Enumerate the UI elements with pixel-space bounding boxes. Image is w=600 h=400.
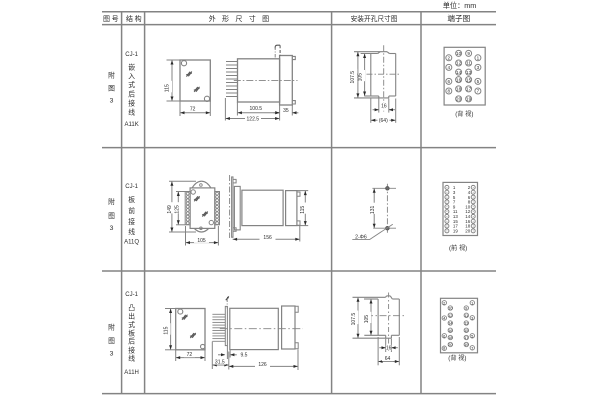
- svg-text:19: 19: [466, 97, 472, 102]
- svg-text:接: 接: [128, 99, 135, 108]
- svg-text:线: 线: [128, 227, 135, 236]
- svg-text:72: 72: [190, 106, 196, 112]
- svg-text:19: 19: [453, 229, 458, 234]
- svg-text:9.5: 9.5: [241, 353, 248, 359]
- svg-text:8: 8: [448, 89, 451, 94]
- svg-text:式: 式: [128, 80, 135, 89]
- svg-text:板: 板: [128, 328, 135, 337]
- svg-text:17: 17: [466, 87, 472, 92]
- svg-text:16: 16: [448, 328, 453, 333]
- svg-text:115: 115: [163, 326, 169, 334]
- svg-text:20: 20: [465, 229, 470, 234]
- svg-text:18: 18: [456, 87, 462, 92]
- svg-text:图: 图: [108, 337, 115, 345]
- svg-text:126: 126: [258, 362, 267, 368]
- svg-text:CJ-1: CJ-1: [125, 52, 138, 58]
- svg-text:图号: 图号: [103, 15, 120, 23]
- svg-text:13: 13: [464, 321, 469, 326]
- svg-text:接: 接: [128, 217, 135, 226]
- svg-text:64: 64: [385, 356, 391, 362]
- svg-text:附: 附: [108, 197, 115, 206]
- svg-text:13: 13: [466, 70, 472, 75]
- svg-text:105: 105: [358, 73, 364, 82]
- svg-text:嵌: 嵌: [128, 64, 135, 72]
- svg-text:16: 16: [381, 104, 387, 110]
- svg-text:19: 19: [464, 342, 469, 347]
- svg-text:18: 18: [448, 335, 453, 340]
- svg-text:(64): (64): [379, 118, 388, 124]
- svg-text:156: 156: [263, 235, 272, 241]
- svg-text:16: 16: [456, 77, 462, 82]
- svg-text:115: 115: [164, 84, 170, 92]
- svg-text:图: 图: [108, 85, 115, 93]
- svg-text:14: 14: [448, 321, 453, 326]
- svg-text:(背 视): (背 视): [455, 110, 473, 118]
- svg-text:131: 131: [370, 206, 376, 215]
- svg-text:11: 11: [466, 61, 471, 66]
- svg-text:后: 后: [128, 337, 135, 346]
- svg-text:3: 3: [110, 98, 114, 105]
- svg-text:板: 板: [128, 195, 135, 204]
- svg-text:结构: 结构: [126, 14, 143, 23]
- svg-text:单位：mm: 单位：mm: [443, 1, 477, 10]
- svg-text:10: 10: [448, 306, 453, 311]
- svg-text:105: 105: [364, 315, 370, 324]
- svg-text:接: 接: [128, 345, 135, 354]
- svg-text:115: 115: [300, 206, 306, 214]
- svg-text:107.5: 107.5: [350, 71, 356, 84]
- svg-text:20: 20: [448, 342, 453, 347]
- svg-text:3: 3: [477, 65, 480, 70]
- svg-text:A11H: A11H: [124, 370, 139, 376]
- svg-text:16: 16: [386, 346, 392, 352]
- svg-text:CJ-1: CJ-1: [125, 292, 138, 298]
- svg-text:安装开孔尺寸图: 安装开孔尺寸图: [351, 14, 398, 23]
- svg-text:122.5: 122.5: [247, 116, 260, 122]
- svg-text:A11Q: A11Q: [124, 240, 139, 246]
- svg-text:入: 入: [128, 72, 135, 80]
- svg-text:附: 附: [108, 70, 115, 79]
- svg-text:2: 2: [448, 56, 451, 61]
- svg-text:15: 15: [466, 77, 472, 82]
- svg-text:凸: 凸: [128, 304, 135, 312]
- svg-text:14: 14: [456, 70, 462, 75]
- svg-text:(背 视): (背 视): [448, 354, 466, 362]
- svg-text:(前 视): (前 视): [449, 244, 467, 252]
- svg-text:1: 1: [477, 56, 480, 61]
- svg-text:线: 线: [128, 354, 135, 363]
- svg-text:出: 出: [128, 311, 135, 320]
- svg-text:线: 线: [128, 108, 135, 117]
- svg-text:端子图: 端子图: [447, 13, 470, 23]
- svg-text:100.5: 100.5: [250, 106, 263, 112]
- svg-text:式: 式: [128, 320, 135, 329]
- svg-text:17: 17: [464, 335, 469, 340]
- svg-text:后: 后: [128, 89, 135, 98]
- svg-text:10: 10: [456, 51, 462, 56]
- svg-text:CJ-1: CJ-1: [125, 184, 138, 190]
- svg-text:35: 35: [283, 108, 289, 114]
- svg-text:12: 12: [448, 313, 453, 318]
- svg-text:15: 15: [464, 328, 469, 333]
- svg-text:4: 4: [448, 65, 451, 70]
- svg-text:3: 3: [110, 351, 114, 358]
- svg-text:图: 图: [108, 212, 115, 220]
- svg-text:6: 6: [448, 79, 451, 84]
- svg-text:外 形 尺 寸 图: 外 形 尺 寸 图: [209, 14, 272, 23]
- svg-text:107.5: 107.5: [351, 313, 357, 326]
- svg-text:105: 105: [197, 238, 206, 244]
- svg-text:149: 149: [167, 205, 173, 214]
- svg-text:附: 附: [108, 322, 115, 331]
- svg-text:125: 125: [174, 205, 180, 214]
- svg-text:72: 72: [187, 352, 193, 358]
- svg-text:A11K: A11K: [124, 122, 138, 128]
- svg-text:12: 12: [456, 61, 462, 66]
- svg-text:9: 9: [467, 51, 470, 56]
- svg-text:31.5: 31.5: [215, 360, 225, 366]
- svg-text:3: 3: [110, 225, 114, 232]
- svg-text:7: 7: [477, 89, 480, 94]
- svg-text:前: 前: [128, 206, 135, 215]
- svg-text:5: 5: [477, 79, 480, 84]
- svg-text:20: 20: [456, 97, 462, 102]
